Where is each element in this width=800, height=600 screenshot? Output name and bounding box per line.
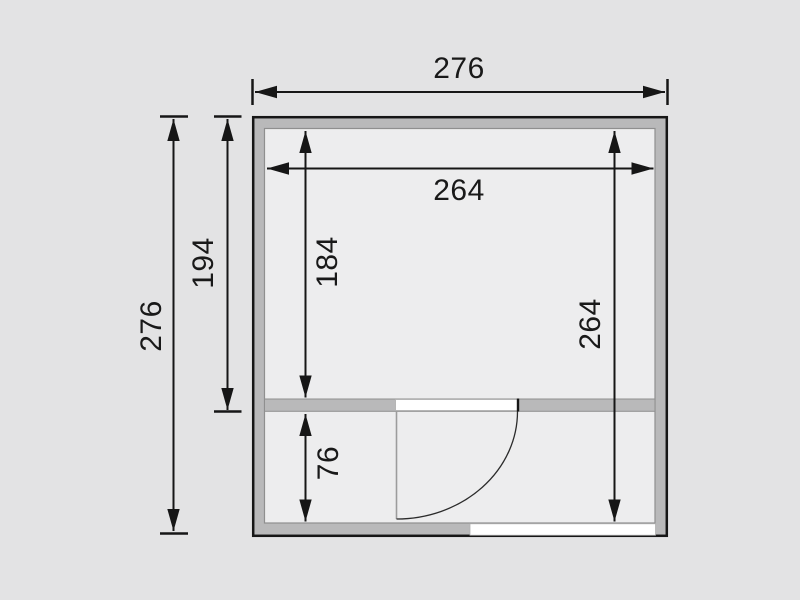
dim-label-inner-depth: 264 (576, 298, 606, 350)
floor-plan-canvas: 276 276 194 264 184 264 76 (0, 0, 800, 600)
arrow-up-icon (221, 119, 233, 141)
arrow-down-icon (221, 388, 233, 410)
dim-label-overall-width: 276 (433, 54, 485, 84)
door-opening (396, 400, 518, 411)
bottom-wall-opening (470, 524, 656, 535)
dim-label-inner-width: 264 (433, 176, 485, 206)
dim-label-rear-depth-inner: 184 (313, 236, 343, 288)
arrow-up-icon (167, 119, 179, 141)
arrow-left-icon (255, 86, 277, 98)
dim-label-rear-depth-outer: 194 (189, 237, 219, 289)
arrow-down-icon (167, 509, 179, 531)
dim-label-overall-depth: 276 (137, 300, 167, 352)
floor-plan-drawing (0, 0, 800, 600)
dim-label-front-depth: 76 (314, 446, 344, 480)
arrow-right-icon (643, 86, 665, 98)
